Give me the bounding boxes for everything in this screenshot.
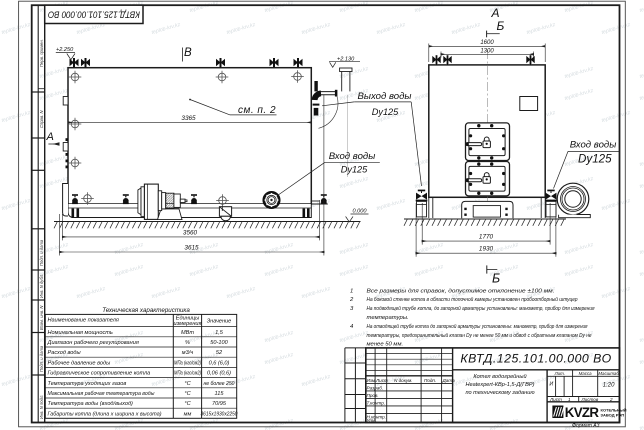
svg-text:На боковой стенке котла в обла: На боковой стенке котла в области топочн…	[367, 296, 579, 303]
svg-text:KVZR: KVZR	[565, 405, 599, 420]
svg-text:Б: Б	[492, 272, 500, 286]
svg-text:Гидравлическое сопротивление к: Гидравлическое сопротивление котла	[48, 371, 151, 377]
svg-text:Температура уходящих газов: Температура уходящих газов	[48, 381, 127, 387]
svg-text:И: И	[549, 382, 553, 388]
svg-text:Масштаб: Масштаб	[598, 371, 619, 376]
svg-text:Т.контр.: Т.контр.	[367, 401, 386, 406]
svg-text:Расход воды: Расход воды	[48, 350, 81, 356]
svg-text:КОТЕЛЬНЫЙ: КОТЕЛЬНЫЙ	[601, 407, 627, 412]
svg-text:МВт: МВт	[181, 330, 194, 336]
svg-text:Котел водогрейный: Котел водогрейный	[473, 373, 526, 380]
svg-text:°С: °С	[184, 381, 191, 387]
svg-text:Dy125: Dy125	[372, 107, 399, 117]
svg-text:Рабочее давление воды: Рабочее давление воды	[48, 360, 111, 366]
svg-text:N докум.: N докум.	[394, 378, 413, 383]
svg-text:Листов: Листов	[581, 397, 599, 402]
svg-text:Dy125: Dy125	[578, 153, 612, 166]
svg-text:Dy125: Dy125	[341, 164, 368, 174]
svg-text:1600: 1600	[480, 40, 494, 46]
svg-text:°С: °С	[184, 391, 191, 397]
svg-text:см. п. 2: см. п. 2	[238, 105, 276, 116]
svg-text:мм: мм	[184, 411, 192, 417]
svg-text:0,6 (6,0): 0,6 (6,0)	[209, 360, 230, 366]
svg-text:Подп.: Подп.	[424, 378, 436, 383]
svg-text:не более 250: не более 250	[204, 381, 236, 387]
svg-text:Температура воды (вход/выход): Температура воды (вход/выход)	[48, 401, 134, 407]
svg-text:Вход воды: Вход воды	[570, 139, 617, 150]
svg-text:2: 2	[609, 397, 613, 402]
svg-text:На подводящей трубе котла, д: На подводящей трубе котла, до запорной а…	[367, 305, 596, 312]
svg-text:Инв. N подл.: Инв. N подл.	[39, 395, 44, 419]
svg-text:Номинальная мощность: Номинальная мощность	[48, 330, 113, 336]
svg-text:Инв. N дубл.: Инв. N дубл.	[39, 274, 44, 298]
svg-text:Масса: Масса	[579, 371, 593, 376]
svg-text:1:20: 1:20	[603, 383, 615, 389]
svg-text:52: 52	[216, 350, 223, 356]
svg-text:измерения: измерения	[174, 321, 202, 327]
svg-text:Диапазон рабочего регулировани: Диапазон рабочего регулирования	[47, 340, 139, 346]
svg-text:температуры.: температуры.	[367, 315, 409, 321]
svg-text:Максимальная рабочая температу: Максимальная рабочая температура воды	[48, 391, 155, 397]
svg-text:Техническая характеристика: Техническая характеристика	[102, 307, 190, 314]
svg-text:Справ. N: Справ. N	[39, 110, 44, 128]
svg-text:Б: Б	[497, 19, 505, 33]
svg-text:Подп. и дата: Подп. и дата	[39, 239, 44, 266]
svg-text:В: В	[184, 47, 192, 59]
svg-text:Наименование показателя: Наименование показателя	[48, 318, 119, 324]
svg-text:3365: 3365	[181, 115, 196, 122]
svg-text:Разраб.: Разраб.	[367, 386, 384, 391]
svg-text:Пров.: Пров.	[367, 393, 379, 398]
svg-text:Перв. примен.: Перв. примен.	[39, 39, 44, 67]
svg-text:ЗАВОД РЭП: ЗАВОД РЭП	[601, 413, 625, 418]
svg-text:1770: 1770	[479, 233, 494, 240]
svg-text:Лист: Лист	[549, 397, 562, 402]
svg-text:Взам. инв. N: Взам. инв. N	[39, 305, 44, 330]
svg-text:Вход воды: Вход воды	[329, 151, 376, 162]
svg-text:МПа (кгс/см2): МПа (кгс/см2)	[174, 371, 201, 377]
svg-text:На отводящей трубе котла до за: На отводящей трубе котла до запорной арм…	[367, 323, 589, 330]
svg-text:КВТД.125.101.00.000 ВО: КВТД.125.101.00.000 ВО	[48, 9, 140, 19]
svg-text:Выход воды: Выход воды	[358, 91, 412, 102]
svg-text:3615х1930х2250: 3615х1930х2250	[201, 411, 239, 417]
svg-text:Значение: Значение	[207, 319, 232, 325]
svg-text:Подп. и дата: Подп. и дата	[39, 345, 44, 372]
svg-text:1: 1	[568, 397, 571, 402]
svg-text:°С: °С	[184, 401, 191, 407]
svg-text:Все размеры для справок, допус: Все размеры для справок, допустимое откл…	[367, 288, 555, 294]
svg-text:3560: 3560	[183, 229, 198, 236]
svg-text:А: А	[46, 131, 54, 143]
svg-text:А: А	[491, 6, 500, 20]
svg-text:2: 2	[349, 297, 354, 303]
svg-text:1930: 1930	[479, 246, 494, 253]
svg-text:менее 50 мм.: менее 50 мм.	[367, 342, 404, 348]
svg-text:Утв.: Утв.	[367, 418, 377, 423]
svg-text:температуры, предохранительный: температуры, предохранительный клапан Dу…	[367, 332, 593, 339]
svg-text:1: 1	[350, 288, 353, 294]
svg-text:Heatexpert-КВр-1,5-Д(ГВР): Heatexpert-КВр-1,5-Д(ГВР)	[465, 382, 534, 388]
svg-text:%: %	[185, 340, 190, 346]
svg-text:Габариты котла (длина х ширина: Габариты котла (длина х ширина х высота)	[48, 411, 162, 417]
svg-text:м3/ч: м3/ч	[182, 350, 193, 356]
svg-text:Лист: Лист	[375, 378, 388, 383]
svg-text:Лит.: Лит.	[554, 371, 565, 376]
svg-text:115: 115	[215, 391, 225, 397]
svg-text:Формат А3: Формат А3	[572, 423, 600, 429]
svg-text:3615: 3615	[184, 245, 199, 252]
svg-text:по техническому заданию: по техническому заданию	[465, 390, 535, 396]
svg-text:1300: 1300	[480, 48, 494, 54]
svg-text:Изм.: Изм.	[367, 378, 377, 383]
svg-text:1,5: 1,5	[215, 330, 224, 336]
svg-text:50-100: 50-100	[210, 340, 228, 346]
svg-text:0,06 (0,6): 0,06 (0,6)	[207, 371, 231, 377]
svg-text:70/95: 70/95	[212, 401, 227, 407]
svg-text:КВТД.125.101.00.000 ВО: КВТД.125.101.00.000 ВО	[460, 352, 611, 366]
svg-text:Дата: Дата	[442, 378, 456, 383]
svg-text:МПа (кгс/см2): МПа (кгс/см2)	[174, 360, 201, 366]
